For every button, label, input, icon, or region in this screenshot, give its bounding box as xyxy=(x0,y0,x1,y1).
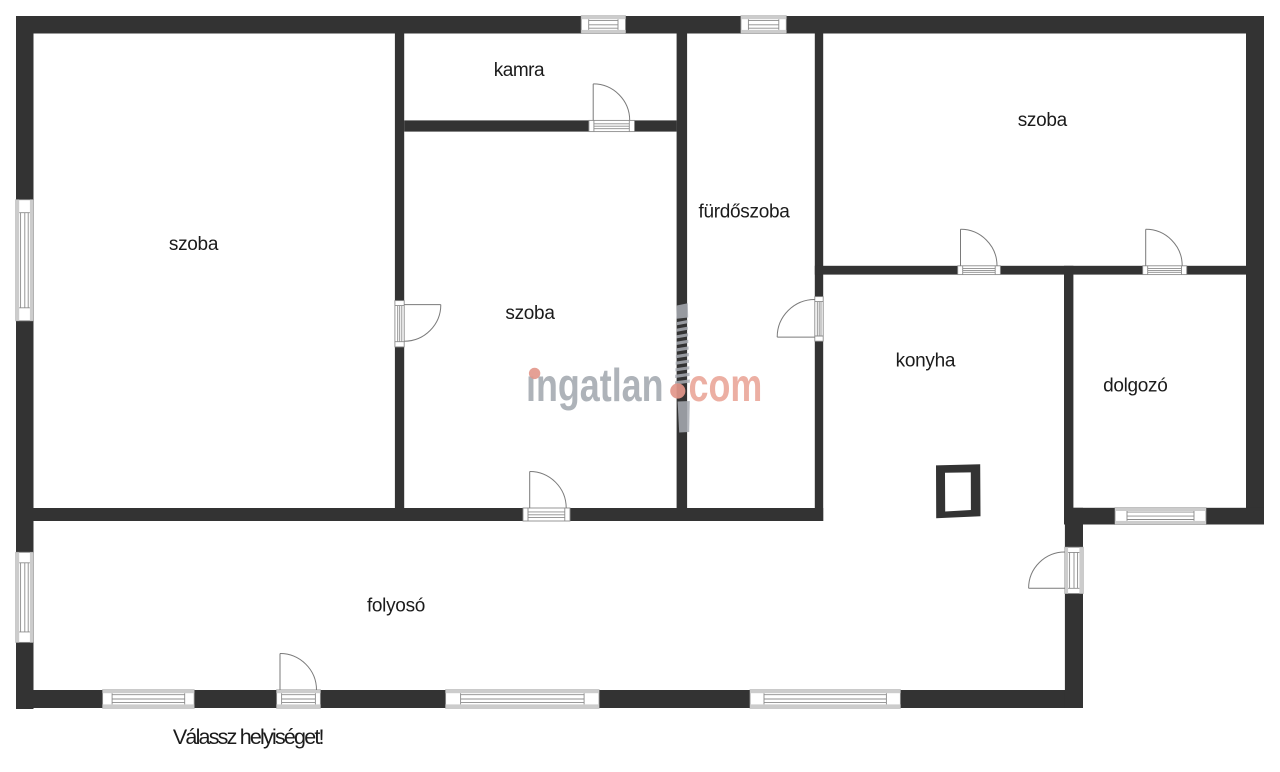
svg-text:szoba: szoba xyxy=(505,303,555,324)
svg-text:szoba: szoba xyxy=(1018,110,1068,131)
svg-text:Válassz helyiséget!: Válassz helyiséget! xyxy=(173,725,324,749)
svg-text:dolgozó: dolgozó xyxy=(1103,375,1167,396)
svg-text:konyha: konyha xyxy=(896,350,956,371)
svg-text:szoba: szoba xyxy=(169,234,219,255)
svg-text:fürdőszoba: fürdőszoba xyxy=(698,201,790,222)
svg-text:com: com xyxy=(689,360,763,411)
svg-text:kamra: kamra xyxy=(494,60,545,81)
svg-text:folyosó: folyosó xyxy=(367,596,425,617)
svg-text:ıngatlan: ıngatlan xyxy=(526,360,664,411)
